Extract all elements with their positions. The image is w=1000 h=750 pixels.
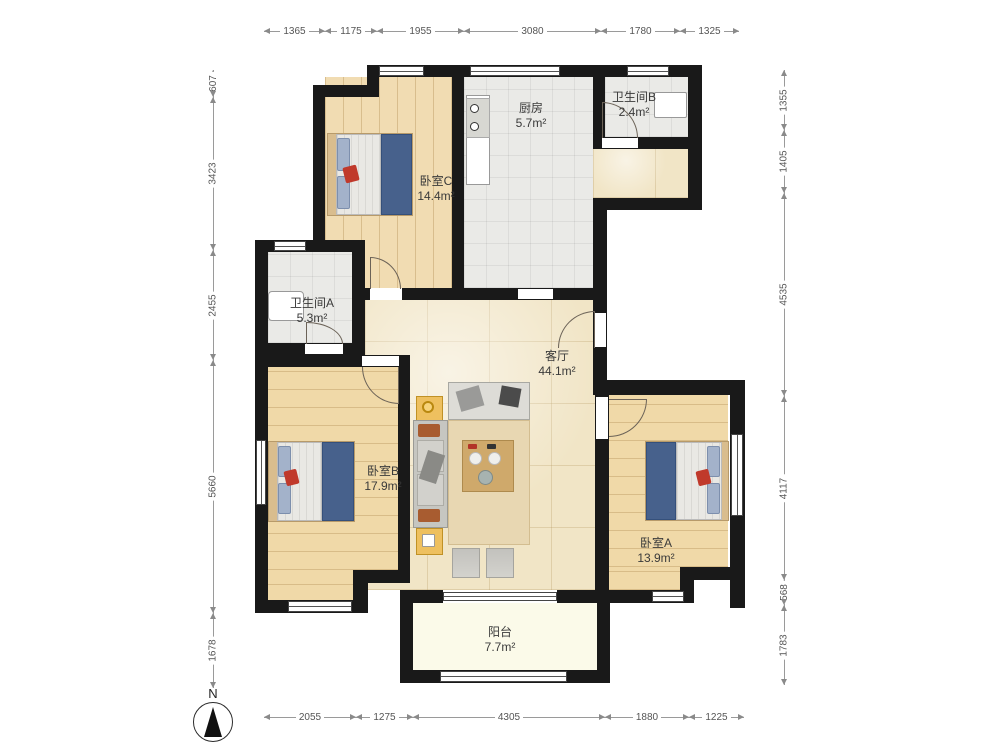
top-dim-1: 1175: [325, 24, 377, 38]
top-dim-4: 1780: [601, 24, 680, 38]
floor-plan-page: N 卧室C14.4m²厨房5.7m²卫生间B2.4m²卫生间A5.3m²客厅44…: [0, 0, 1000, 750]
left-dim-4: 1678: [206, 613, 220, 688]
kitchen-door-opening: [518, 289, 553, 299]
dim-value: 1678: [208, 636, 219, 664]
top-dim-5: 1325: [680, 24, 739, 38]
dim-value: 1325: [695, 26, 723, 37]
left-dim-1: 3423: [206, 97, 220, 250]
top-dim-2: 1955: [377, 24, 464, 38]
coffee-table-teapot: [478, 470, 493, 485]
window-bedroom-b-bottom: [288, 601, 352, 612]
bedroom-a-floor-lower: [607, 567, 680, 590]
dim-value: 1780: [626, 26, 654, 37]
room-label-bedroom-a: 卧室A13.9m²: [637, 536, 674, 566]
sofa-brown-pillow: [418, 509, 440, 522]
right-dim-5: 1783: [777, 605, 791, 685]
dim-value: 4535: [779, 280, 790, 308]
bottom-dim-4: 1225: [689, 710, 744, 724]
wall-notch-left: [593, 198, 607, 390]
room-label-bedroom-c: 卧室C14.4m²: [417, 174, 454, 204]
dim-value: 4117: [779, 474, 790, 502]
bottom-dim-3: 1880: [605, 710, 689, 724]
room-label-bathroom-a: 卫生间A5.3m²: [290, 296, 334, 326]
dim-value: 568: [779, 581, 790, 604]
right-dim-4: 568: [777, 580, 791, 605]
coffee-table-red-item: [468, 444, 477, 449]
bedroom-c-door-opening: [370, 288, 402, 300]
ottoman: [452, 548, 480, 578]
bed-c-blanket: [381, 134, 412, 215]
bed-b-blanket: [322, 442, 354, 521]
stove-burner: [470, 122, 479, 131]
right-dim-2: 4535: [777, 193, 791, 396]
left-dim-2: 2455: [206, 250, 220, 360]
dim-value: 3080: [518, 26, 546, 37]
north-arrow-icon: [204, 707, 222, 737]
floor-plan: N 卧室C14.4m²厨房5.7m²卫生间B2.4m²卫生间A5.3m²客厅44…: [0, 0, 1000, 750]
dim-value: 1405: [779, 147, 790, 175]
wall-left-exterior: [255, 240, 268, 613]
bedroom-b-floor-lower: [267, 570, 353, 603]
room-label-bedroom-b: 卧室B17.9m²: [364, 464, 401, 494]
left-dim-3: 5660: [206, 360, 220, 613]
dim-value: 1355: [779, 86, 790, 114]
dim-value: 5660: [208, 472, 219, 500]
wall-balcony-top-left: [400, 590, 443, 603]
room-label-balcony: 阳台7.7m²: [485, 625, 516, 655]
room-label-living-room: 客厅44.1m²: [538, 349, 575, 379]
dim-value: 1955: [406, 26, 434, 37]
right-dim-3: 4117: [777, 396, 791, 580]
bed-b-pillow: [278, 483, 291, 514]
north-label: N: [208, 686, 217, 701]
bottom-dim-2: 4305: [413, 710, 605, 724]
dim-value: 1783: [779, 631, 790, 659]
bed-a-pillow: [707, 483, 720, 514]
top-dim-3: 3080: [464, 24, 601, 38]
bathroom-a-door-opening: [305, 344, 343, 354]
room-label-kitchen: 厨房5.7m²: [516, 101, 547, 131]
dim-value: 607: [208, 72, 219, 95]
window-south-middle: [652, 591, 684, 602]
window-bedroom-c: [379, 66, 424, 76]
window-bathroom-a: [274, 241, 306, 251]
bottom-dim-1: 1275: [356, 710, 413, 724]
window-bedroom-a-right: [731, 434, 743, 516]
bathroom-b-basin-icon: [654, 92, 687, 118]
bedroom-b-door-opening: [362, 356, 399, 366]
side-table-lamp-icon: [422, 401, 434, 413]
wall-bedroom-b-step-v: [353, 570, 368, 603]
window-bathroom-b: [627, 66, 669, 76]
right-dim-1: 1405: [777, 130, 791, 193]
room-label-bathroom-b: 卫生间B2.4m²: [612, 90, 656, 120]
ottoman: [486, 548, 514, 578]
dim-value: 1225: [702, 712, 730, 723]
coffee-table-plate: [469, 452, 482, 465]
bedroom-a-door-opening: [596, 397, 608, 439]
wall-notch-top: [598, 198, 702, 210]
wall-right-top-exterior: [688, 65, 702, 210]
sofa-brown-pillow: [418, 424, 440, 437]
balcony-sliding-door: [443, 592, 557, 601]
dim-value: 1365: [280, 26, 308, 37]
entry-vestibule-floor: [593, 148, 688, 198]
coffee-table-dark-item: [487, 444, 496, 449]
dim-value: 2055: [296, 712, 324, 723]
window-kitchen: [470, 66, 560, 76]
window-bedroom-b-left: [256, 440, 266, 505]
stove-burner: [470, 104, 479, 113]
dim-value: 2455: [208, 291, 219, 319]
dim-value: 1175: [337, 26, 365, 37]
dim-value: 3423: [208, 159, 219, 187]
right-dim-0: 1355: [777, 70, 791, 130]
bathroom-b-door-opening: [602, 138, 638, 148]
wall-bathroom-a-top: [255, 240, 365, 252]
wall-bathroom-a-right: [352, 240, 365, 355]
side-table-lamp-icon: [422, 534, 435, 547]
top-dim-0: 1365: [264, 24, 325, 38]
stove-icon: [466, 98, 490, 138]
wall-bedroom-c-left: [313, 85, 325, 252]
bed-a-blanket: [646, 442, 676, 520]
window-balcony: [440, 671, 567, 682]
entry-door-opening: [594, 313, 606, 347]
sofa-dark-item: [499, 385, 522, 407]
coffee-table-plate: [488, 452, 501, 465]
wall-bedroom-a-top: [593, 380, 745, 395]
bottom-dim-0: 2055: [264, 710, 356, 724]
dim-value: 1880: [633, 712, 661, 723]
dim-value: 4305: [495, 712, 523, 723]
dim-value: 1275: [370, 712, 398, 723]
left-dim-0: 607: [206, 70, 220, 97]
